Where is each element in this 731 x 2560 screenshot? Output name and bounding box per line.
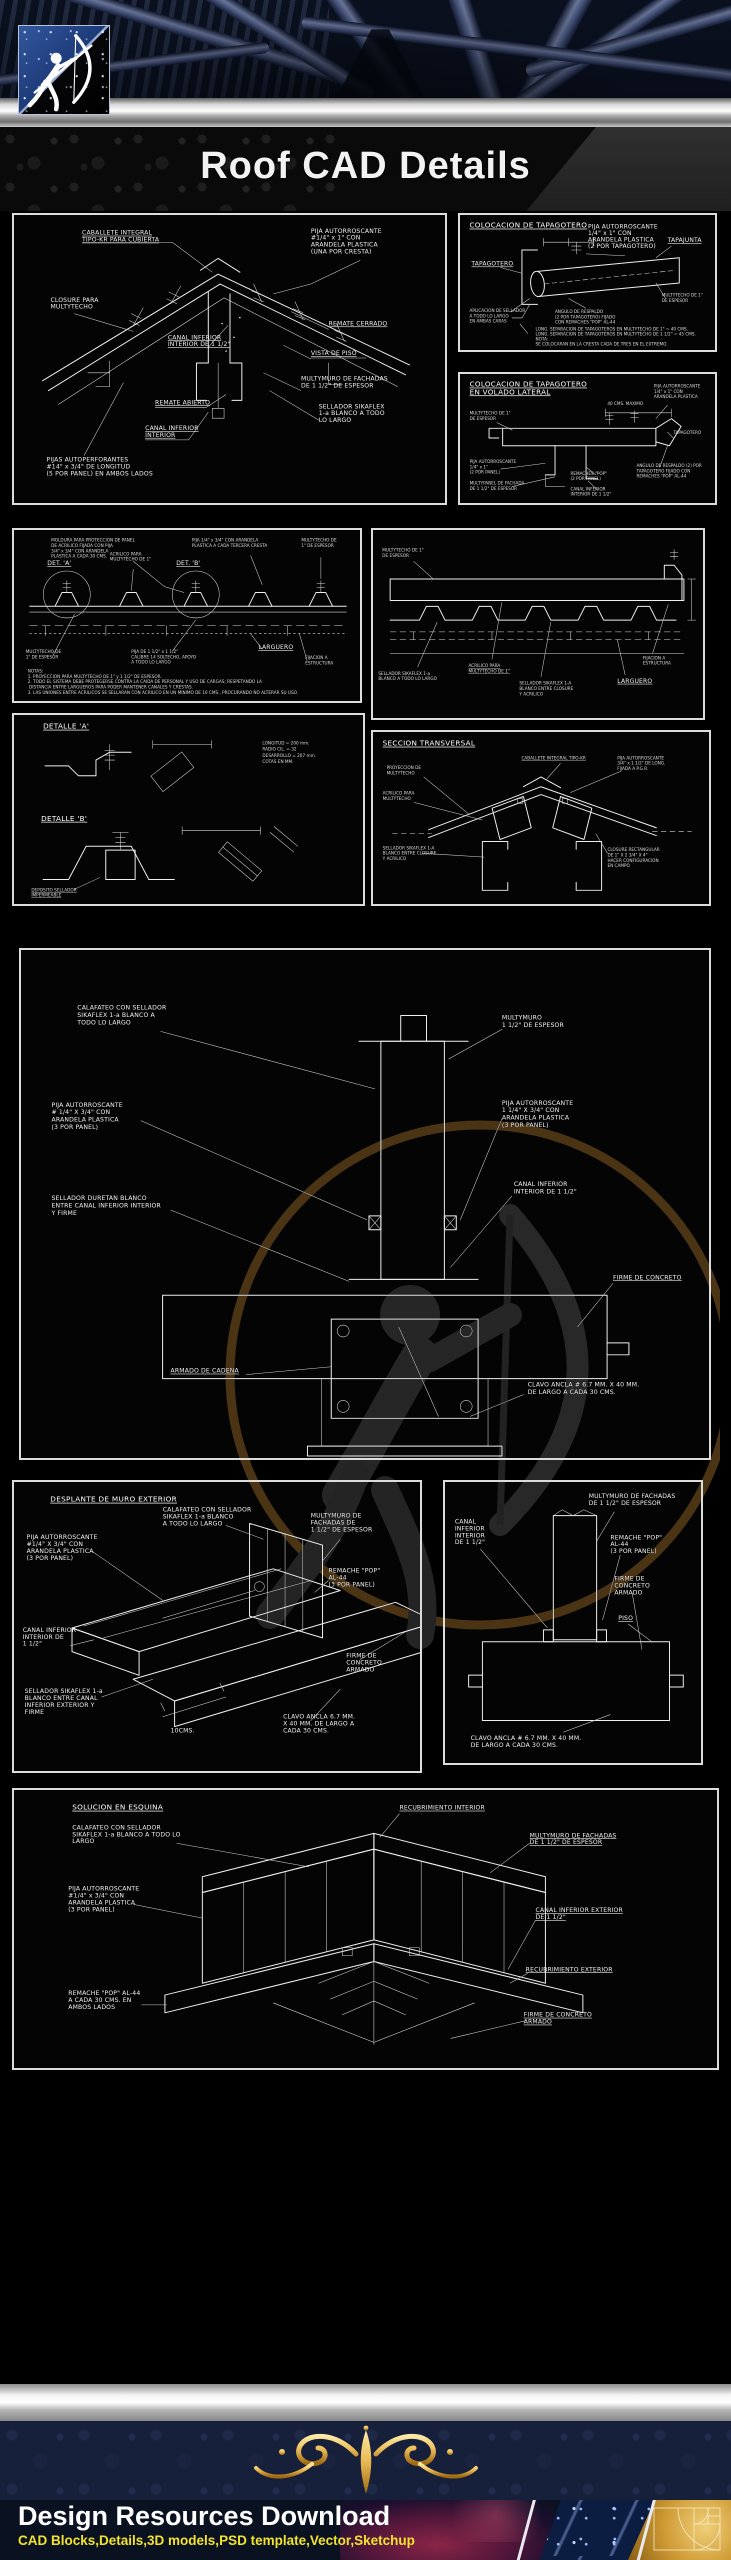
cad-label: CLAVO ANCLA # 6.7 MM. X 40 MM.DE LARGO A…: [471, 1735, 582, 1749]
cad-label: TAPAJUNTA: [667, 237, 703, 244]
cad-panel-tapagotero-volado: COLOCACION DE TAPAGOTEROEN VOLADO LATERA…: [458, 372, 717, 505]
cad-label: MULTYTECHO DE 1"DE ESPESOR: [382, 548, 423, 558]
ornament-band: [0, 2421, 731, 2500]
panel-title: COLOCACION DE TAPAGOTEROEN VOLADO LATERA…: [470, 380, 588, 397]
cad-label: TAPAGOTERO: [672, 430, 702, 435]
cad-label: MULTYTECHO DE 1"DE ESPESOR: [470, 411, 511, 421]
cad-label: CANAL INFERIORINTERIOR DE1 1/2": [23, 1627, 77, 1648]
cad-label: PIJA AUTORROSCANTE1/4" x 1" CONARANDELA …: [588, 224, 658, 250]
cad-label: FIJACION AESTRUCTURA: [305, 655, 333, 665]
cad-label: FIJACION AESTRUCTURA: [643, 655, 671, 665]
cad-label: CALAFATEO CON SELLADORSIKAFLEX 1-a BLANC…: [163, 1507, 252, 1528]
cad-label: PIJA AUTORROSCANTE1 1/4" X 3/4" CONARAND…: [502, 1100, 573, 1129]
cad-label: CANAL INFERIOR EXTERIORDE 1 1/2": [536, 1907, 624, 1921]
cad-label: REMATE CERRADO: [329, 320, 388, 327]
cad-panel-tapagotero: COLOCACION DE TAPAGOTERO TAPAGOTERO PIJA…: [458, 213, 717, 352]
cad-panel-fijacion-lamina: MOLDURA PARA PROTECCION DE PANELDE ACRIL…: [12, 528, 362, 703]
cad-panel-ridge-detail: CABALLETE INTEGRALTIPO-KR PARA CUBIERTA …: [12, 213, 447, 505]
gold-flourish-ornament-icon: [216, 2424, 516, 2498]
cad-label: CALAFATEO CON SELLADORSIKAFLEX 1-a BLANC…: [76, 1005, 167, 1027]
cad-label: ANGULO DE RESPALDO(2 POR TAPAGOTERO) FIJ…: [555, 309, 616, 324]
cad-label: SELLADOR SIKAFLEX 1-aBLANCO A TODO LO LA…: [378, 671, 437, 681]
page-title: Roof CAD Details: [0, 145, 731, 188]
cad-label: TAPAGOTERO: [470, 261, 513, 268]
cad-notes: LONG. SEPARACION DE TAPAGOTEROS EN MULTY…: [536, 327, 696, 347]
cad-notes: NOTAS:1. PROYECCION PARA MULTYTECHO DE 1…: [28, 669, 298, 695]
esquina-drawing: SOLUCION EN ESQUINA CALAFATEO CON SELLAD…: [14, 1790, 717, 2068]
cad-label: CLOSURE PARAMULTYTECHO: [50, 297, 99, 311]
cad-label: CABALLETE INTEGRAL TIPO-KR: [521, 755, 585, 760]
seccion-transversal-drawing: SECCION TRANSVERSAL PROYECCION DEMULTYTE…: [373, 732, 709, 904]
cad-panel-muro-base: MULTYMURO DE FACHADASDE 1 1/2" DE ESPESO…: [443, 1480, 703, 1765]
cad-label: MULTYTECHO DE 1"DE ESPESOR: [662, 293, 703, 303]
cad-label: DEPOSITO SELLADORIMPERMEABLE: [31, 887, 76, 897]
silver-divider-bar-bottom: [0, 2384, 731, 2421]
cad-label: PIJA AUTORROSCANTE#1/4" x 1" CONARANDELA…: [311, 228, 382, 256]
cad-label: REMACHE "POP"AL-44(3 POR PANEL): [610, 1534, 662, 1555]
cad-label: CALAFATEO CON SELLADORSIKAFLEX 1-a BLANC…: [72, 1824, 180, 1845]
tapagotero-volado-drawing: COLOCACION DE TAPAGOTEROEN VOLADO LATERA…: [460, 374, 715, 503]
cad-panel-esquina: SOLUCION EN ESQUINA CALAFATEO CON SELLAD…: [12, 1788, 719, 2070]
cad-label: PIJAS AUTOPERFORANTES#14" x 3/4" DE LONG…: [47, 457, 153, 478]
cad-label: PIJA AUTORROSCANTE1/4" x 1" CONARANDELA …: [654, 384, 701, 399]
cad-label: ACRILICO PARAMULTYTECHO DE 1": [468, 663, 509, 673]
cad-label: MULTYMURO DEFACHADAS DE1 1/2" DE ESPESOR: [311, 1513, 373, 1534]
footer-banner: Design Resources Download CAD Blocks,Det…: [0, 2500, 731, 2560]
cad-label: ANGULO DE RESPALDO (2) PORTAPAGOTERO FIJ…: [635, 463, 701, 478]
cad-label: CLOSURE RECTANGULARDE 1" X 2 3/4" X 4"HA…: [607, 847, 659, 868]
cad-label: PIJA 1/4" x 3/4" CON ARANDELAPLASTICA A …: [192, 538, 267, 548]
cad-label: CANAL INFERIORINTERIOR: [145, 425, 199, 439]
cad-label: ACRILICO PARAMULTYTECHO DE 1": [110, 551, 151, 561]
cad-label: MULTYMURO DE FACHADASDE 1 1/2" DE ESPESO…: [301, 376, 388, 390]
cad-label: MULTYTECHO DE1" DE ESPESOR: [301, 538, 337, 548]
title-band: Roof CAD Details: [0, 127, 731, 211]
ridge-detail-drawing: CABALLETE INTEGRALTIPO-KR PARA CUBIERTA …: [14, 215, 445, 503]
cad-label: SELLADOR SIKAFLEX 1-ABLANCO ENTRE CLOSUR…: [518, 681, 573, 697]
panel-title: DETALLE 'B': [41, 814, 87, 823]
cad-label: 10CMS.: [171, 1728, 195, 1735]
cad-label: MULTYMURO DE FACHADASDE 1 1/2" DE ESPESO…: [530, 1832, 617, 1846]
cad-label: MULTYMURO DE FACHADASDE 1 1/2" DE ESPESO…: [589, 1493, 676, 1507]
cad-panel-seccion-longitudinal: MULTYTECHO DE 1"DE ESPESOR SELLADOR SIKA…: [371, 528, 705, 720]
cad-label: REMACHE "POP" AL-44A CADA 30 CMS. ENAMBO…: [68, 1990, 140, 2011]
cad-label: ACRILICO PARAMULTYTECHO: [383, 791, 415, 801]
cad-label: PIJA AUTORROSCANTE1/4" x 1"(2 POR PANEL): [470, 459, 517, 474]
cad-label: ARMADO DE CADENA: [171, 1368, 240, 1375]
cad-label: FIRME DE CONCRETO: [613, 1274, 682, 1281]
cad-label: REMATE ABIERTO: [155, 399, 210, 406]
panel-title: DETALLE 'A': [43, 722, 89, 731]
cad-label: CLAVO ANCLA 6.7 MM.X 40 MM. DE LARGO ACA…: [283, 1714, 355, 1735]
cad-label: LARGUERO: [258, 644, 293, 651]
cad-label: CANAL INFERIORINTERIOR DE 1 1/2": [168, 334, 231, 348]
panel-title: DESPLANTE DE MURO EXTERIOR: [50, 1495, 177, 1504]
roof-cad-details-poster: Roof CAD Details: [0, 0, 731, 2560]
seccion-longitudinal-drawing: MULTYTECHO DE 1"DE ESPESOR SELLADOR SIKA…: [373, 530, 703, 718]
cad-label: DET. 'B': [176, 560, 200, 567]
footer-subtitle: CAD Blocks,Details,3D models,PSD templat…: [18, 2533, 415, 2548]
cad-label: SELLADOR SIKAFLEX 1-aBLANCO ENTRE CANALI…: [25, 1688, 103, 1716]
cad-label: RECUBRIMIENTO INTERIOR: [400, 1805, 486, 1812]
cad-label: PIJA AUTORROSCANTE#1/4" x 3/4" CONARANDE…: [68, 1886, 139, 1914]
desplante-muro-drawing: DESPLANTE DE MURO EXTERIOR CALAFATEO CON…: [14, 1482, 420, 1771]
cad-label: PIJA AUTORROSCANTE# 1/4" X 3/4" CONARAND…: [51, 1102, 122, 1131]
cad-panel-detalles: DETALLE 'A' LONGITUD = 200 mm.RADIO CIL.…: [12, 713, 365, 906]
cad-label: CANAL INFERIORINTERIOR DE 1 1/2": [514, 1181, 577, 1195]
cad-label: FIRME DECONCRETOARMADO: [614, 1576, 650, 1597]
cad-label: PIJA DE 1 1/2" x 1 1/2"CALIBRE 14 SOLTEC…: [131, 649, 197, 665]
cad-label: RECUBRIMIENTO EXTERIOR: [526, 1966, 614, 1973]
muro-base-drawing: MULTYMURO DE FACHADASDE 1 1/2" DE ESPESO…: [445, 1482, 701, 1763]
cad-label: SELLADOR SIKAFLEX 1-ABLANCO ENTRE CLOSUR…: [382, 845, 437, 861]
cad-label: CABALLETE INTEGRALTIPO-KR PARA CUBIERTA: [81, 230, 160, 244]
cad-label: LARGUERO: [617, 678, 652, 685]
cad-label: DET. 'A': [47, 560, 71, 567]
panel-title: SECCION TRANSVERSAL: [383, 739, 476, 748]
cad-label: SELLADOR SIKAFLEX1-a BLANCO A TODOLO LAR…: [319, 403, 385, 424]
cad-label: PISO: [618, 1615, 633, 1622]
cad-label: FIRME DE CONCRETOARMADO: [524, 2012, 592, 2026]
cad-label: MULTYPANEL DE FACHADADE 1 1/2" DE ESPESO…: [470, 481, 525, 491]
panel-title: COLOCACION DE TAPAGOTERO: [469, 221, 587, 230]
cad-label: CANAL INFERIORINTERIOR DE 1 1/2": [571, 486, 612, 496]
cad-label: CLAVO ANCLA # 6.7 MM. X 40 MM.DE LARGO A…: [528, 1382, 640, 1396]
cad-label: REMACHE "POP"AL-44(3 POR PANEL): [328, 1568, 380, 1589]
cad-panel-muro-firme: CALAFATEO CON SELLADORSIKAFLEX 1-a BLANC…: [19, 948, 711, 1460]
archer-logo-icon: [18, 25, 110, 115]
cad-label: VISTA DE PISO: [311, 350, 357, 357]
cad-label: SELLADOR DURETAN BLANCOENTRE CANAL INFER…: [50, 1195, 161, 1217]
cad-panel-desplante-muro: DESPLANTE DE MURO EXTERIOR CALAFATEO CON…: [12, 1480, 422, 1773]
muro-firme-drawing: CALAFATEO CON SELLADORSIKAFLEX 1-a BLANC…: [21, 950, 709, 1458]
cad-label: FIRME DECONCRETOARMADO: [346, 1653, 382, 1674]
cad-label: APLICACION DE SELLADORA TODO LO LARGOEN …: [469, 308, 525, 323]
cad-label: REMACHES "POP"(2 POR PANEL): [571, 471, 608, 481]
cad-label: PIJA AUTORROSCANTE#1/4" X 3/4" CONARANDE…: [27, 1534, 98, 1562]
cad-label: MULTYMURO1 1/2" DE ESPESOR: [502, 1014, 565, 1028]
cad-label: 40 CMS. MAXIMO: [607, 401, 643, 406]
cad-label: CANALINFERIORINTERIORDE 1 1/2": [455, 1519, 486, 1547]
cad-label: PROYECCION DEMULTYTECHO: [387, 765, 422, 775]
detalles-drawing: DETALLE 'A' LONGITUD = 200 mm.RADIO CIL.…: [14, 715, 363, 904]
tapagotero-drawing: COLOCACION DE TAPAGOTERO TAPAGOTERO PIJA…: [460, 215, 715, 350]
cad-label: LONGITUD = 200 mm.RADIO CIL. = 32DESARRO…: [262, 740, 316, 764]
cad-label: MULTYTECHO DE1" DE ESPESOR: [26, 649, 62, 659]
cad-label: PIJA AUTORROSCANTE3/4" x 1 1/2" DE LONG.…: [617, 755, 665, 771]
fijacion-lamina-drawing: MOLDURA PARA PROTECCION DE PANELDE ACRIL…: [14, 530, 360, 701]
cad-panel-seccion-transversal: SECCION TRANSVERSAL PROYECCION DEMULTYTE…: [371, 730, 711, 906]
panel-title: SOLUCION EN ESQUINA: [72, 1803, 163, 1812]
footer-title: Design Resources Download: [18, 2501, 390, 2532]
